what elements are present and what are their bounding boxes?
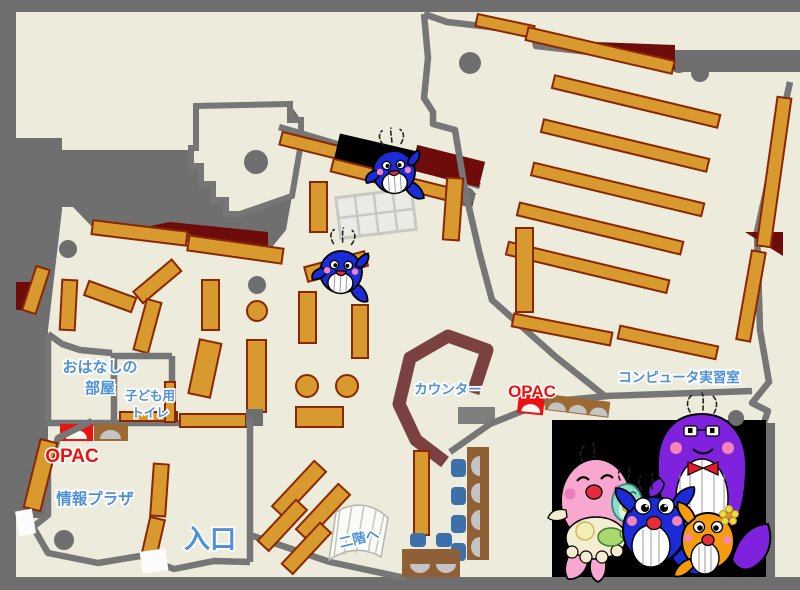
- door-gap: [140, 548, 169, 573]
- label-counter: カウンター: [414, 382, 482, 398]
- turtle-toy: [598, 528, 624, 546]
- label-opac-left: OPAC: [45, 446, 99, 467]
- pillar: [244, 150, 268, 174]
- floor-map-canvas: おはなしの 部屋 子ども用 トイレ OPAC 情報プラザ 入口 カウンター OP…: [0, 0, 800, 590]
- round-table: [296, 375, 318, 397]
- table: [296, 407, 343, 427]
- chair: [436, 533, 452, 547]
- pillar: [459, 52, 481, 74]
- pillar: [691, 64, 709, 82]
- label-storytelling-room-line1: おはなしの: [62, 358, 137, 376]
- label-kids-toilet-line2: トイレ: [131, 405, 169, 420]
- chair: [451, 487, 466, 505]
- library-floor-map: おはなしの 部屋 子ども用 トイレ OPAC 情報プラザ 入口 カウンター OP…: [0, 0, 800, 590]
- round-table: [336, 375, 358, 397]
- chair: [451, 515, 466, 533]
- label-kids-toilet-line1: 子ども用: [125, 388, 175, 403]
- pillar: [59, 240, 77, 258]
- pillar: [248, 276, 266, 294]
- label-computer-room: コンピュータ実習室: [618, 369, 740, 386]
- pillar: [54, 530, 74, 550]
- label-info-plaza: 情報プラザ: [56, 489, 134, 508]
- round-table: [247, 301, 267, 321]
- study-tables-grid: [336, 189, 416, 239]
- label-entrance: 入口: [184, 525, 236, 555]
- chair: [410, 533, 426, 547]
- label-opac-right: OPAC: [508, 382, 556, 401]
- chair: [451, 459, 466, 477]
- label-storytelling-room-line2: 部屋: [85, 379, 115, 397]
